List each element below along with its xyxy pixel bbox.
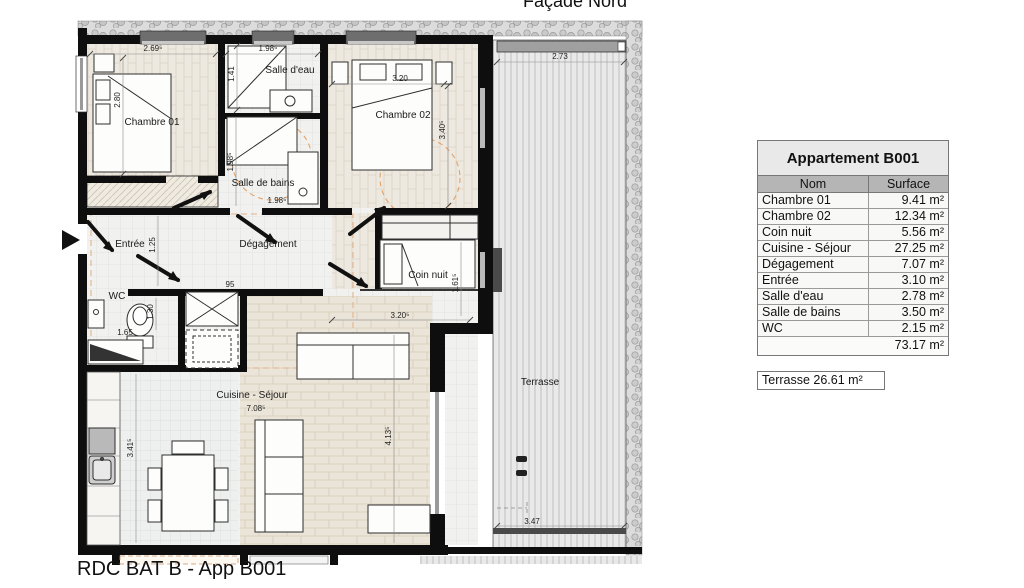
window-top-salle-eau [252,31,294,44]
row-name: Dégagement [758,257,869,272]
row-name: Salle d'eau [758,289,869,304]
dim-cuisine-height: 3.41⁵ [126,439,135,458]
dim-wc-width: 1.65 [117,328,133,337]
chair [148,468,161,490]
window-top-chambre-02 [346,31,416,44]
entrance-arrow-icon [62,230,80,250]
dim-coin-nuit-height: 1.61⁵ [451,274,460,293]
washbasin [270,90,312,112]
room-label-salle-eau: Salle d'eau [265,65,314,76]
table-row: Salle de bains3.50 m² [758,305,948,321]
floor-plan-page: Façade Nord [0,0,1024,588]
row-name: Coin nuit [758,225,869,240]
nightstand [332,62,348,84]
row-surface: 2.15 m² [869,321,948,336]
table-row: Chambre 019.41 m² [758,193,948,209]
room-label-wc: WC [109,291,126,302]
dim-chambre02-height: 3.40⁵ [438,121,447,140]
surface-table-title: Appartement B001 [758,141,948,176]
room-label-chambre-01: Chambre 01 [124,117,179,128]
dim-terrasse-south: 3.47 [524,517,540,526]
table-row: WC2.15 m² [758,321,948,337]
cooktop [89,428,115,454]
row-surface: 27.25 m² [869,241,948,256]
dim-wc-height: 1.30 [146,304,155,320]
dim-salle-bains-height: 1.98⁵ [226,153,235,172]
row-name: Chambre 02 [758,209,869,224]
dim-terrasse-width: 2.73 [552,52,568,61]
table-total-surface: 73.17 m² [758,337,948,355]
row-surface: 3.50 m² [869,305,948,320]
tv-bench [368,505,430,533]
column-header-surface: Surface [869,176,948,192]
row-name: Salle de bains [758,305,869,320]
dim-entree-height: 1.25 [148,237,157,253]
dim-coin-nuit-width: 3.20⁵ [391,311,410,320]
sideboard [172,441,204,454]
nightstand [436,62,452,84]
table-row: Dégagement7.07 m² [758,257,948,273]
table-row: Salle d'eau2.78 m² [758,289,948,305]
room-label-entree: Entrée [115,239,145,250]
dim-cuisine-width: 7.08⁵ [247,404,266,413]
room-label-chambre-02: Chambre 02 [375,110,430,121]
row-name: Entrée [758,273,869,288]
chair [215,468,228,490]
pillow [384,244,402,284]
dim-salle-eau-height: 1.41 [227,66,236,82]
room-label-degagement: Dégagement [239,239,296,250]
sliding-door-sejour [430,392,445,514]
chair [148,500,161,522]
entrance-opening [62,224,87,254]
pillow [96,80,110,100]
room-label-salle-bains: Salle de bains [232,178,295,189]
chair [215,500,228,522]
terrasse-surface-note: Terrasse 26.61 m² [757,371,885,390]
dining-table [162,455,214,531]
nightstand [94,54,114,72]
column-header-nom: Nom [758,176,869,192]
room-label-cuisine-sejour: Cuisine - Séjour [216,390,288,401]
table-row: Coin nuit5.56 m² [758,225,948,241]
surface-table-header: Nom Surface [758,176,948,193]
row-surface: 5.56 m² [869,225,948,240]
dim-chambre01-height: 2.80 [113,92,122,108]
row-surface: 7.07 m² [869,257,948,272]
row-surface: 3.10 m² [869,273,948,288]
row-surface: 12.34 m² [869,209,948,224]
dim-sejour-height: 4.13⁵ [384,427,393,446]
table-row: Entrée3.10 m² [758,273,948,289]
dim-chambre02-width: 3.20 [392,74,408,83]
row-name: Chambre 01 [758,193,869,208]
dim-salle-bains-width: 1.98⁵ [268,196,287,205]
pillow [360,64,386,80]
row-surface: 2.78 m² [869,289,948,304]
row-name: WC [758,321,869,336]
row-name: Cuisine - Séjour [758,241,869,256]
dim-salle-eau-width: 1.98⁵ [259,44,278,53]
room-label-terrasse: Terrasse [521,377,560,388]
window-left-chambre-01 [76,56,87,112]
dim-chambre01-width: 2.69⁵ [144,44,163,53]
row-surface: 9.41 m² [869,193,948,208]
dim-degagement: 95 [226,280,235,289]
room-label-coin-nuit: Coin nuit [408,270,448,281]
table-row: Chambre 0212.34 m² [758,209,948,225]
window-chambre-02-east [480,88,485,148]
sofa-l [255,420,303,532]
plan-footer-title: RDC BAT B - App B001 [77,558,286,581]
table-row: Cuisine - Séjour27.25 m² [758,241,948,257]
closet-coin-nuit [382,215,478,239]
window-top-chambre-01 [140,31,206,44]
pillow [96,104,110,124]
surface-table: Appartement B001 Nom Surface Chambre 019… [757,140,949,356]
